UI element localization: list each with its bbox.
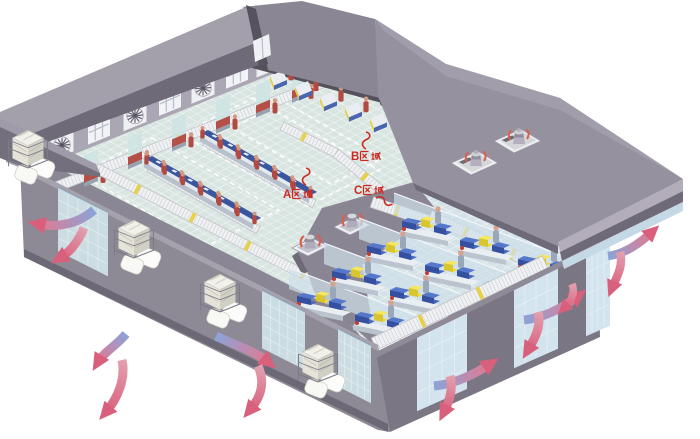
svg-text:A: A — [283, 189, 291, 201]
svg-text:B: B — [351, 151, 359, 163]
svg-text:C: C — [354, 185, 362, 197]
